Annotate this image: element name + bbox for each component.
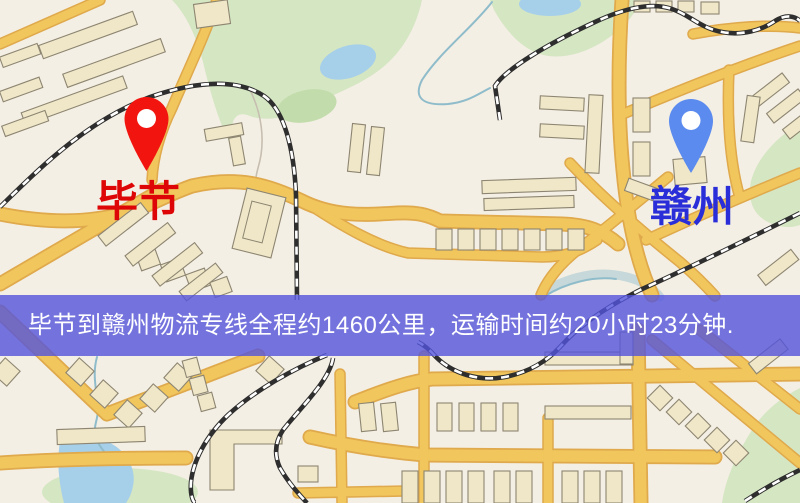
map-screenshot: 毕节 赣州 毕节到赣州物流专线全程约1460公里，运输时间约20小时23分钟. — [0, 0, 800, 503]
route-info-text: 毕节到赣州物流专线全程约1460公里，运输时间约20小时23分钟. — [28, 314, 734, 338]
origin-label: 毕节 — [96, 178, 180, 225]
destination-label: 赣州 — [650, 183, 734, 230]
origin-pin-icon[interactable] — [125, 97, 169, 171]
route-info-banner: 毕节到赣州物流专线全程约1460公里，运输时间约20小时23分钟. — [0, 295, 800, 356]
map-canvas: 毕节 赣州 — [0, 0, 800, 503]
